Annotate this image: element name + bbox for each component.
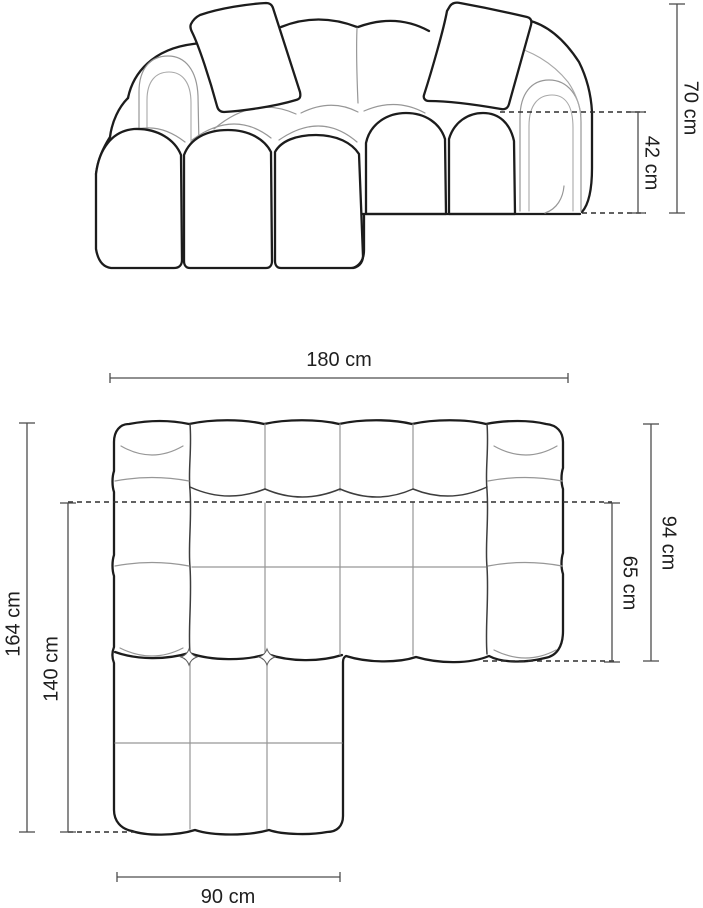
front-right-arm-bottom-seam [545,186,564,213]
front-seat-bubble-1 [366,113,446,214]
front-seat-bubble-2 [449,113,515,214]
dim-total-width-label: 180 cm [306,349,372,371]
dim-total-length-label: 164 cm [2,591,24,657]
dim-total-depth-label: 94 cm [658,516,680,570]
front-chaise-bubble-1 [96,129,182,268]
front-view [96,3,592,268]
top-view [113,420,564,834]
sofa-dimension-diagram: 70 cm 42 cm 180 cm 94 cm 65 cm 164 cm [0,0,703,908]
front-back-cushion-arc-3 [364,104,425,113]
front-pillow-left [190,3,300,112]
front-chaise-bubble-3 [275,135,363,268]
dim-chaise-width-label: 90 cm [201,886,255,908]
top-sofa-outline [113,420,564,834]
front-right-arm-outer [582,112,592,212]
dim-total-height-label: 70 cm [680,81,702,135]
dim-seat-height-label: 42 cm [641,136,663,190]
front-backrest-center-seam [357,28,358,103]
diagram-svg: 70 cm 42 cm 180 cm 94 cm 65 cm 164 cm [0,0,703,908]
dim-seat-depth-label: 65 cm [619,556,641,610]
dim-chaise-length-label: 140 cm [40,636,62,702]
front-backrest-scallop-1 [281,20,357,28]
front-pillow-right [424,3,532,110]
top-left-arm-inner-edge [189,424,190,654]
front-back-right-outline [527,20,592,112]
top-right-arm-inner-edge [486,424,487,654]
front-back-cushion-arc-2 [301,105,358,113]
front-chaise-bubble-2 [184,130,272,268]
front-backrest-scallop-2 [358,21,429,31]
